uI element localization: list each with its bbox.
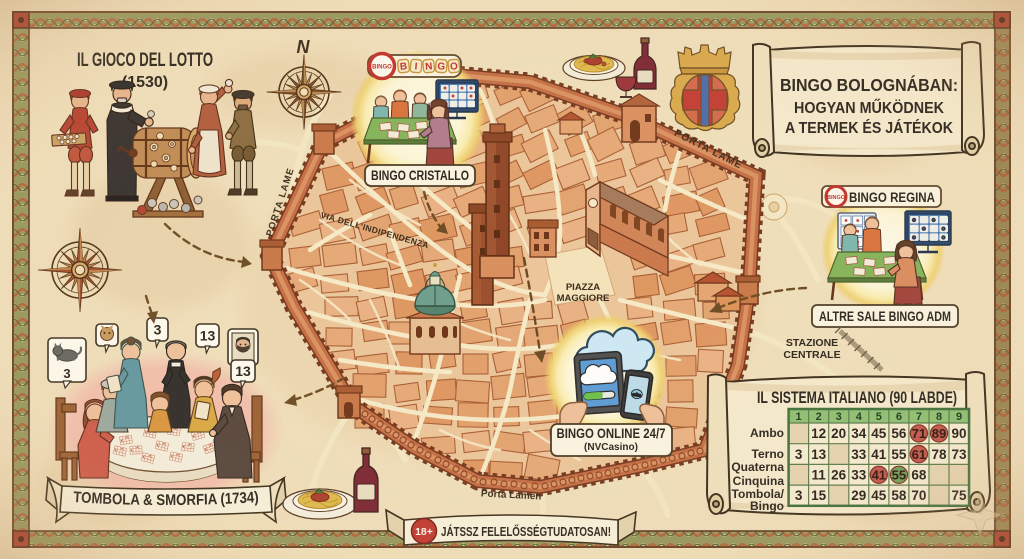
- svg-text:3: 3: [795, 488, 803, 503]
- svg-text:4: 4: [856, 411, 863, 423]
- svg-text:2: 2: [816, 411, 822, 423]
- svg-text:1: 1: [796, 411, 802, 423]
- svg-text:5: 5: [876, 411, 882, 423]
- svg-text:3: 3: [63, 366, 70, 381]
- svg-text:45: 45: [871, 488, 887, 503]
- svg-text:70: 70: [911, 488, 926, 503]
- svg-text:IL GIOCO DEL LOTTO: IL GIOCO DEL LOTTO: [77, 50, 213, 71]
- svg-text:IL SISTEMA ITALIANO (90 LABDE): IL SISTEMA ITALIANO (90 LABDE): [757, 389, 957, 407]
- svg-text:6: 6: [896, 411, 902, 423]
- svg-text:8: 8: [936, 411, 942, 423]
- svg-text:Ambo: Ambo: [750, 426, 784, 440]
- svg-text:MAGGIORE: MAGGIORE: [557, 293, 610, 304]
- svg-text:90: 90: [951, 426, 966, 441]
- svg-text:55: 55: [892, 467, 906, 482]
- svg-text:29: 29: [851, 488, 866, 503]
- svg-text:HOGYAN MŰKÖDNEK: HOGYAN MŰKÖDNEK: [794, 99, 945, 117]
- svg-text:Cinquina: Cinquina: [733, 474, 785, 488]
- svg-text:89: 89: [932, 426, 946, 441]
- svg-text:BINGO BOLOGNÁBAN:: BINGO BOLOGNÁBAN:: [780, 74, 958, 95]
- svg-text:45: 45: [871, 426, 887, 441]
- svg-text:ALTRE SALE BINGO ADM: ALTRE SALE BINGO ADM: [819, 308, 951, 324]
- svg-text:Quaterna: Quaterna: [731, 460, 784, 474]
- svg-text:26: 26: [831, 467, 847, 482]
- svg-text:12: 12: [811, 426, 826, 441]
- svg-text:20: 20: [831, 426, 846, 441]
- svg-text:7: 7: [916, 411, 922, 423]
- svg-text:Terno: Terno: [752, 447, 784, 461]
- svg-text:68: 68: [911, 467, 927, 482]
- svg-text:BINGO: BINGO: [372, 65, 392, 71]
- svg-text:18+: 18+: [415, 526, 433, 538]
- svg-text:CENTRALE: CENTRALE: [783, 349, 840, 361]
- svg-text:71: 71: [912, 426, 926, 441]
- svg-text:11: 11: [812, 467, 827, 482]
- svg-text:JÁTSSZ FELELŐSSÉGTUDATOSAN!: JÁTSSZ FELELŐSSÉGTUDATOSAN!: [441, 524, 611, 539]
- svg-text:13: 13: [200, 328, 216, 344]
- svg-text:3: 3: [836, 411, 842, 423]
- svg-text:34: 34: [851, 426, 867, 441]
- svg-text:55: 55: [891, 447, 907, 462]
- svg-text:41: 41: [871, 447, 887, 462]
- svg-text:TOMBOLA & SMORFIA (1734): TOMBOLA & SMORFIA (1734): [73, 489, 259, 509]
- svg-text:O: O: [450, 61, 459, 73]
- svg-text:9: 9: [956, 411, 962, 423]
- svg-text:BINGO CRISTALLO: BINGO CRISTALLO: [371, 168, 469, 183]
- svg-text:73: 73: [951, 447, 967, 462]
- svg-text:75: 75: [951, 488, 967, 503]
- svg-text:Bingo: Bingo: [750, 499, 784, 513]
- svg-text:STAZIONE: STAZIONE: [786, 337, 838, 349]
- svg-text:G: G: [437, 61, 446, 73]
- svg-text:61: 61: [912, 447, 926, 462]
- svg-text:A TERMEK ÉS JÁTÉKOK: A TERMEK ÉS JÁTÉKOK: [785, 120, 954, 137]
- svg-text:33: 33: [851, 467, 867, 482]
- svg-text:BINGO: BINGO: [827, 195, 846, 201]
- svg-text:3: 3: [154, 322, 162, 338]
- svg-text:3: 3: [795, 447, 803, 462]
- svg-text:33: 33: [851, 447, 867, 462]
- svg-text:(NVCasino): (NVCasino): [584, 442, 638, 453]
- svg-text:58: 58: [891, 488, 907, 503]
- svg-text:15: 15: [811, 488, 827, 503]
- svg-text:B: B: [399, 61, 407, 73]
- svg-text:BINGO REGINA: BINGO REGINA: [849, 190, 935, 205]
- svg-text:56: 56: [891, 426, 907, 441]
- svg-text:41: 41: [872, 467, 886, 482]
- svg-text:PIAZZA: PIAZZA: [566, 282, 600, 293]
- svg-text:78: 78: [931, 447, 947, 462]
- svg-text:13: 13: [811, 447, 827, 462]
- svg-text:N: N: [425, 61, 433, 73]
- svg-text:N: N: [297, 37, 311, 57]
- svg-text:BINGO ONLINE 24/7: BINGO ONLINE 24/7: [557, 426, 666, 441]
- svg-text:13: 13: [235, 363, 251, 379]
